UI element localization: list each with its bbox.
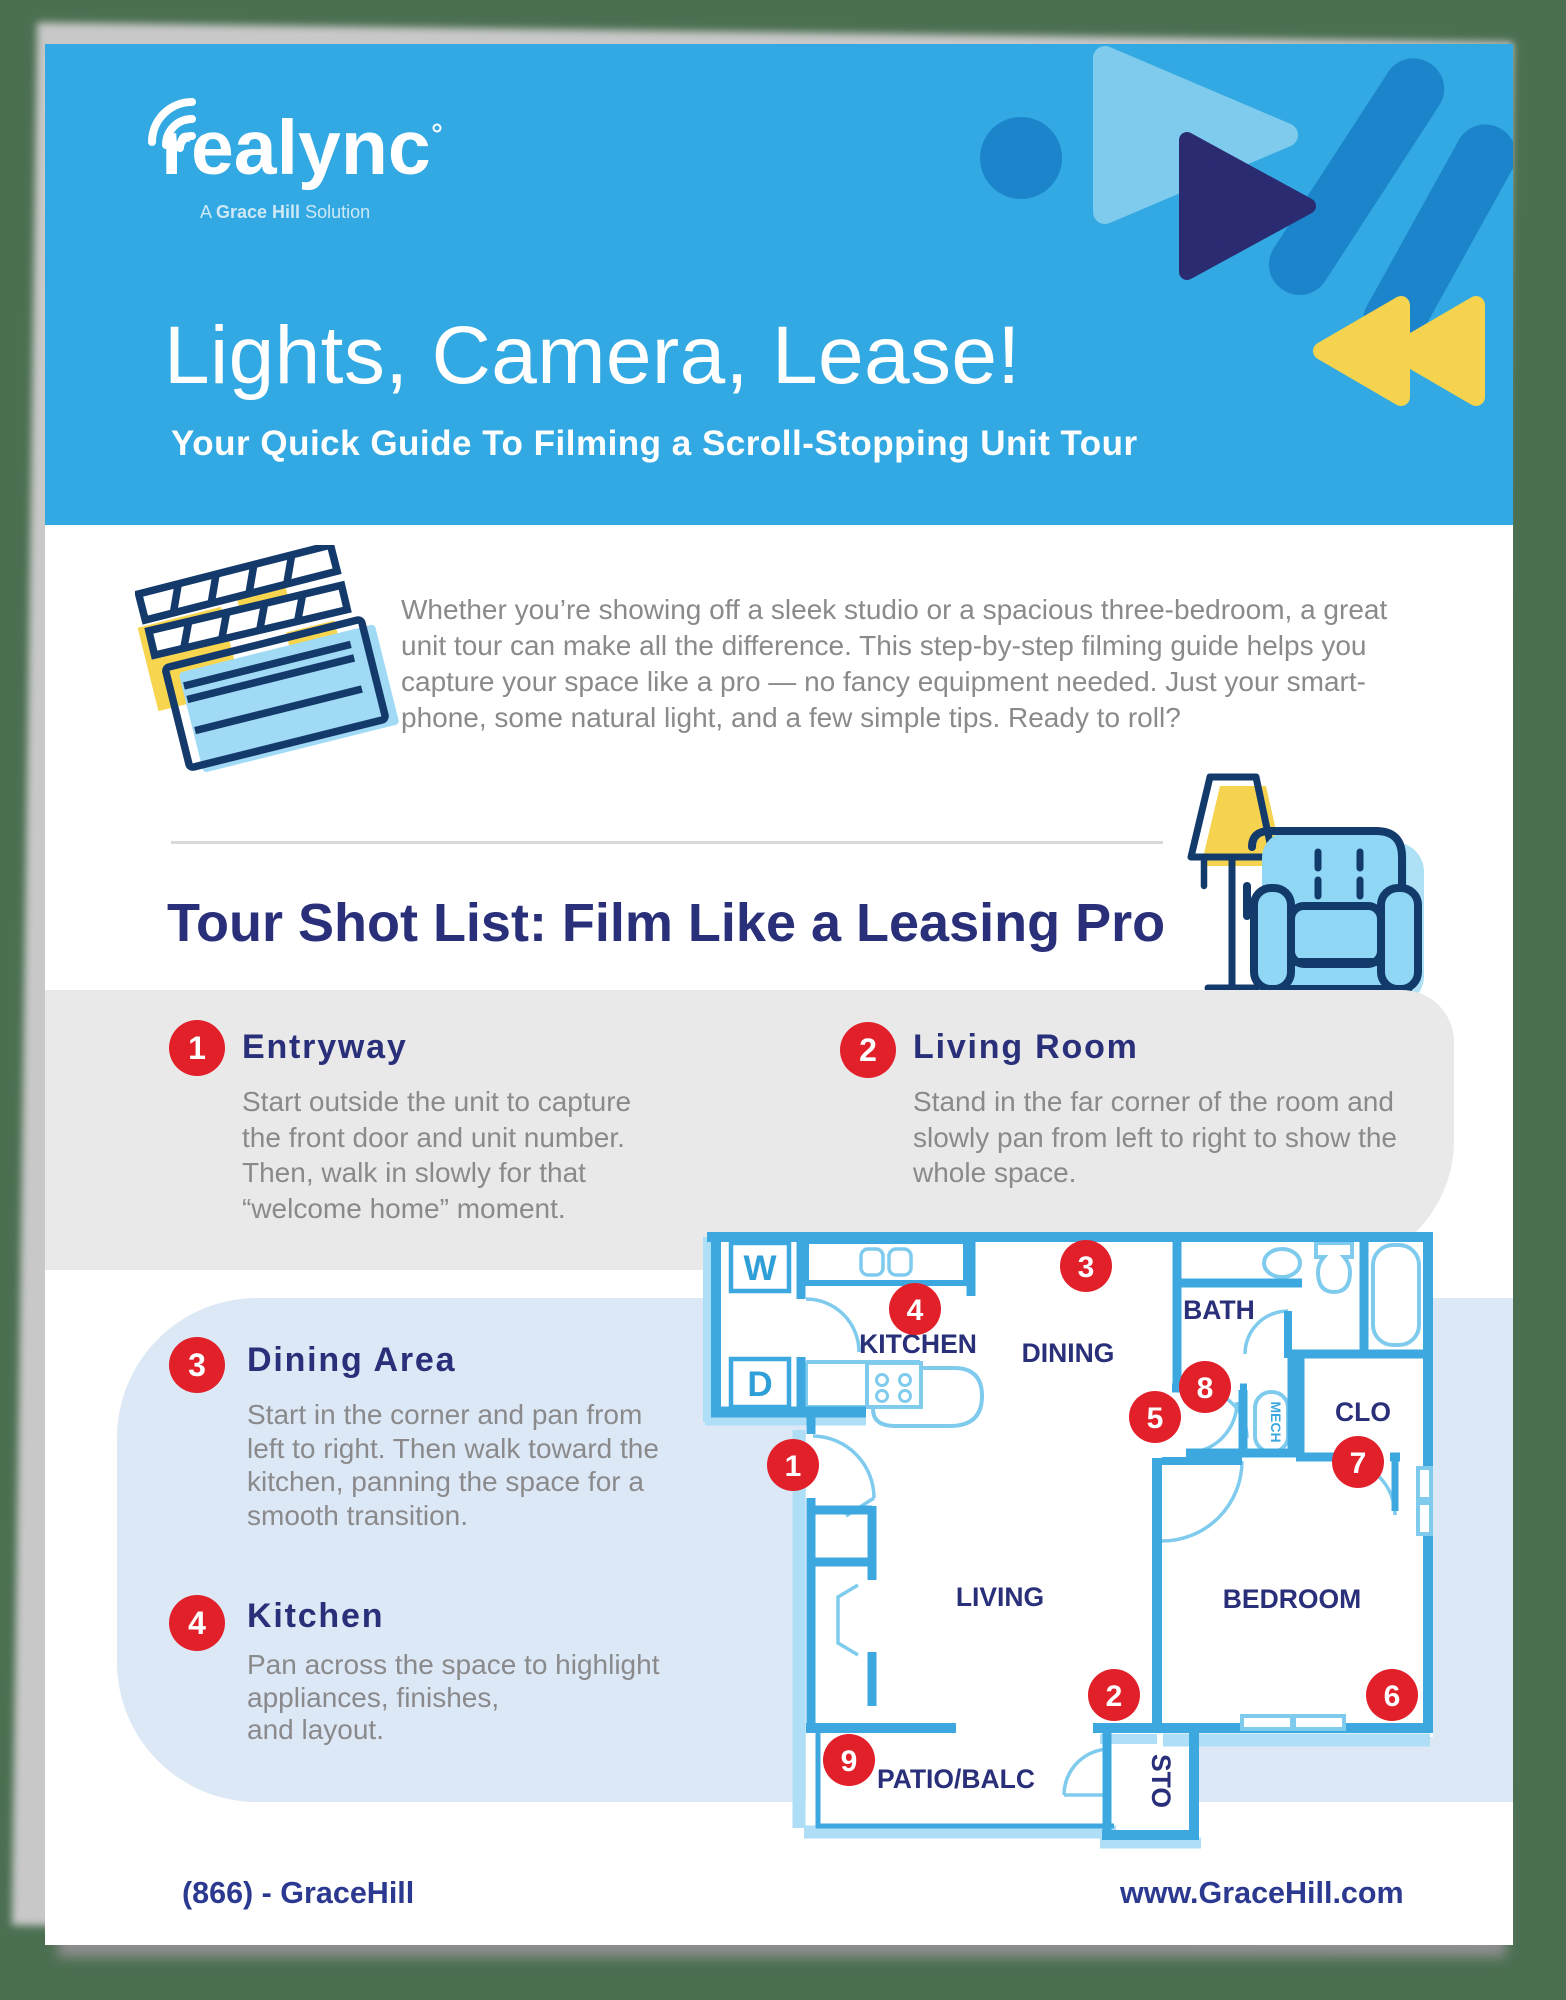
svg-text:5: 5 — [1147, 1402, 1164, 1435]
svg-text:DINING: DINING — [1022, 1338, 1115, 1368]
svg-text:1: 1 — [785, 1450, 802, 1483]
svg-text:3: 3 — [1078, 1251, 1095, 1284]
svg-text:STO: STO — [1146, 1754, 1176, 1808]
svg-text:7: 7 — [1350, 1447, 1367, 1480]
svg-text:CLO: CLO — [1335, 1397, 1391, 1427]
svg-text:W: W — [743, 1249, 776, 1288]
svg-text:2: 2 — [1106, 1680, 1123, 1713]
svg-text:BEDROOM: BEDROOM — [1223, 1584, 1361, 1614]
svg-text:8: 8 — [1197, 1372, 1214, 1405]
svg-text:PATIO/BALC: PATIO/BALC — [877, 1764, 1035, 1794]
svg-text:BATH: BATH — [1183, 1295, 1255, 1325]
svg-text:MECH: MECH — [1268, 1401, 1284, 1442]
svg-text:6: 6 — [1384, 1680, 1401, 1713]
svg-text:9: 9 — [841, 1745, 858, 1778]
svg-text:D: D — [747, 1365, 772, 1404]
svg-text:4: 4 — [907, 1294, 924, 1327]
svg-text:LIVING: LIVING — [956, 1582, 1044, 1612]
